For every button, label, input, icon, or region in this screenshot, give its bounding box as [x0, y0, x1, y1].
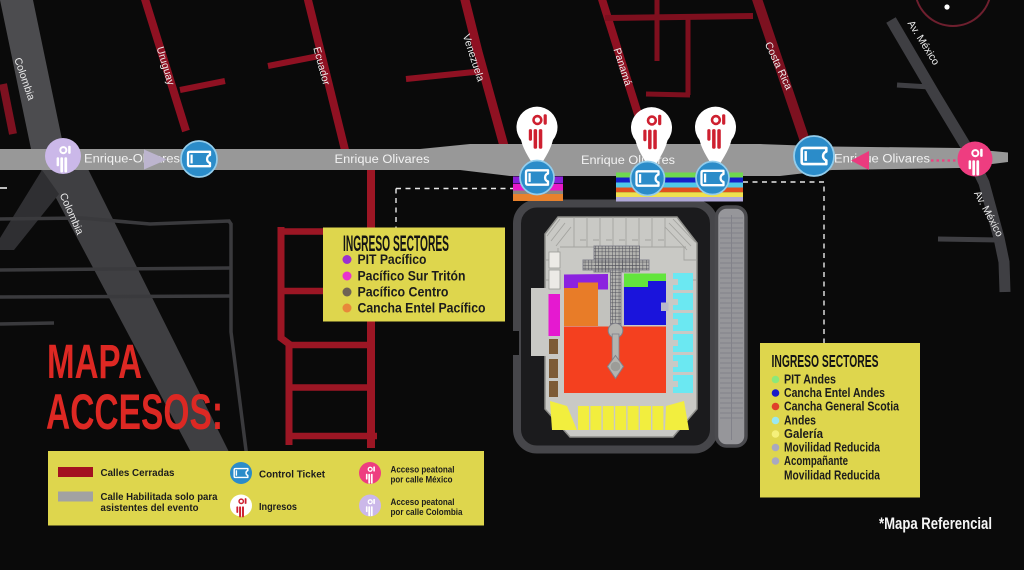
svg-text:Movilidad Reducida: Movilidad Reducida	[784, 441, 881, 455]
svg-text:PIT Pacífico: PIT Pacífico	[358, 252, 427, 267]
svg-text:Cancha Entel Pacífico: Cancha Entel Pacífico	[358, 301, 486, 316]
svg-text:MAPA: MAPA	[47, 336, 142, 389]
svg-text:Cancha Entel Andes: Cancha Entel Andes	[784, 386, 885, 400]
svg-text:Enrique Olivares: Enrique Olivares	[834, 154, 930, 166]
svg-text:Cancha General Scotia: Cancha General Scotia	[784, 400, 900, 414]
svg-text:Pacífico Sur Tritón: Pacífico Sur Tritón	[358, 269, 466, 284]
svg-text:asistentes del evento: asistentes del evento	[101, 502, 199, 514]
svg-text:Enrique Olivares: Enrique Olivares	[581, 155, 675, 167]
svg-text:Movilidad Reducida: Movilidad Reducida	[784, 469, 881, 483]
svg-text:Galería: Galería	[784, 427, 824, 441]
svg-text:Calles Cerradas: Calles Cerradas	[101, 467, 175, 479]
svg-text:Acompañante: Acompañante	[784, 454, 848, 468]
svg-text:ACCESOS:: ACCESOS:	[46, 384, 223, 440]
svg-text:*Mapa Referencial: *Mapa Referencial	[879, 515, 992, 533]
svg-text:Control Ticket: Control Ticket	[259, 469, 325, 481]
svg-text:Andes: Andes	[784, 414, 816, 428]
svg-text:INGRESO SECTORES: INGRESO SECTORES	[772, 351, 879, 371]
svg-text:Enrique Olivares: Enrique Olivares	[335, 154, 430, 166]
svg-text:por calle México: por calle México	[391, 475, 453, 486]
svg-text:PIT Andes: PIT Andes	[784, 373, 836, 387]
svg-text:Pacífico Centro: Pacífico Centro	[358, 285, 449, 300]
svg-text:por calle Colombia: por calle Colombia	[391, 507, 464, 518]
svg-text:Ingresos: Ingresos	[259, 501, 297, 513]
